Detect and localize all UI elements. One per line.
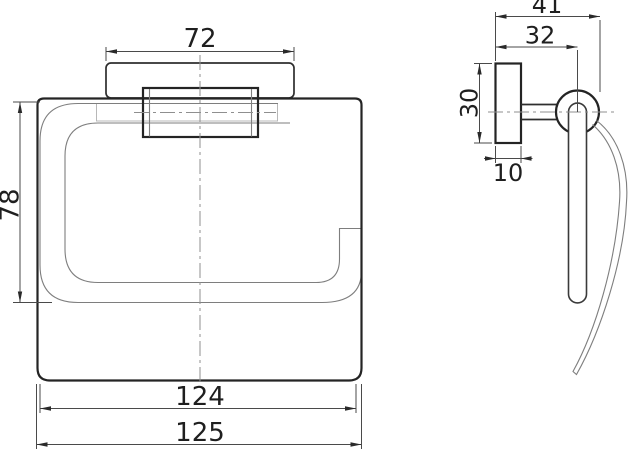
dim-plate-height: 30 [456,64,493,144]
side-view: 41 32 30 10 [456,0,627,375]
dim-72-label: 72 [183,24,216,54]
dim-78-label: 78 [0,188,26,221]
arrow-right [589,14,600,18]
arrow-left [496,45,507,49]
arrow-top [18,102,22,113]
dim-32-label: 32 [525,22,556,50]
drawing-canvas: 72 78 124 125 [0,0,632,450]
arrow-right [567,45,578,49]
dim-124-label: 124 [175,382,225,412]
arrow-bottom [477,132,481,143]
arrow-left [40,406,51,410]
arrow-right [283,49,294,53]
technical-drawing: 72 78 124 125 [0,0,632,450]
rod-outline [569,103,587,303]
dim-10-label: 10 [493,159,524,187]
arrow-right [351,442,362,446]
arrow-top [477,64,481,75]
dim-125-label: 125 [175,418,225,448]
dim-body-width-inner: 124 [40,382,356,413]
paper-roll-outline [40,104,362,303]
dim-plate-thickness: 10 [484,146,533,187]
arrow-left [106,49,117,53]
arrow-left [37,442,48,446]
dim-ring-center-offset: 32 [496,22,578,113]
dim-opening-height: 78 [0,102,52,303]
arrow-left [496,14,507,18]
side-plate-outline [496,64,522,144]
opening-outline [65,123,361,283]
arrow-right [345,406,356,410]
dim-30-label: 30 [456,88,484,119]
arrow-bottom [18,292,22,303]
front-view: 72 78 124 125 [0,24,362,449]
dim-41-label: 41 [532,0,563,19]
